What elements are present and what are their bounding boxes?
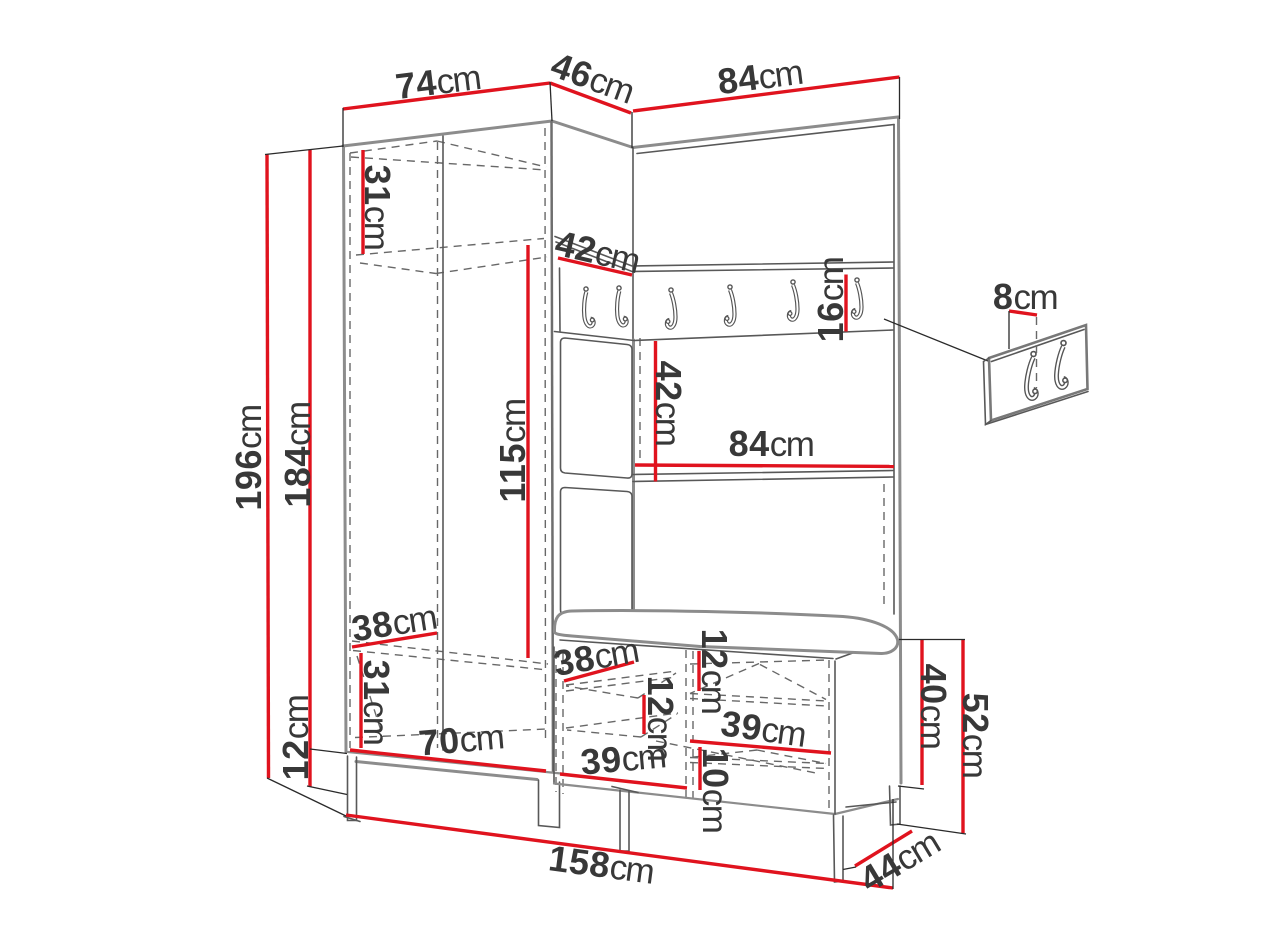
- svg-text:8cm: 8cm: [993, 276, 1057, 317]
- svg-text:84cm: 84cm: [729, 423, 814, 464]
- svg-text:70cm: 70cm: [417, 715, 505, 763]
- svg-text:31cm: 31cm: [356, 660, 397, 745]
- svg-text:16cm: 16cm: [810, 258, 851, 343]
- svg-text:196cm: 196cm: [228, 405, 269, 510]
- svg-text:12cm: 12cm: [694, 629, 735, 714]
- svg-text:39cm: 39cm: [579, 734, 667, 782]
- svg-text:12cm: 12cm: [275, 696, 316, 781]
- svg-text:115cm: 115cm: [492, 399, 533, 502]
- svg-text:40cm: 40cm: [913, 664, 954, 749]
- svg-text:52cm: 52cm: [955, 693, 996, 778]
- svg-text:10cm: 10cm: [695, 748, 736, 833]
- svg-text:42cm: 42cm: [648, 361, 689, 446]
- svg-text:184cm: 184cm: [277, 402, 318, 507]
- svg-text:31cm: 31cm: [357, 165, 398, 250]
